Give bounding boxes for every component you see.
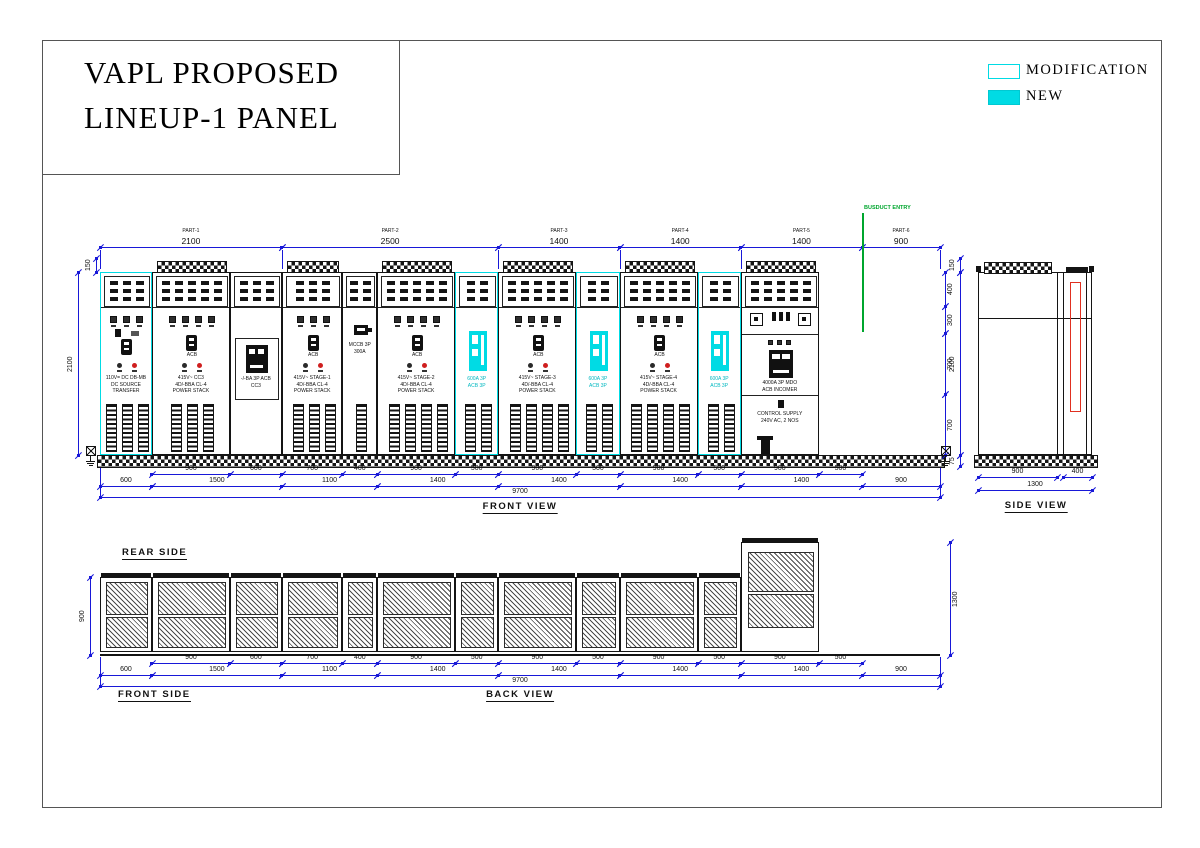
- louver-vent: [803, 289, 811, 293]
- earth-symbol: [944, 465, 948, 466]
- louver-vent: [534, 281, 542, 285]
- dim-marker: [618, 485, 621, 488]
- part-dim: 900: [866, 236, 936, 246]
- rear-cover-hatch: [582, 617, 615, 648]
- acb-label: ACB: [301, 353, 325, 359]
- lamp-green: [182, 363, 187, 368]
- new-acb-slot: [714, 335, 720, 344]
- acb-icon: [654, 335, 665, 351]
- side-view-wall: [1057, 272, 1058, 455]
- meter: [515, 316, 522, 323]
- dim-label: 900: [507, 465, 567, 473]
- dim-line: [620, 474, 698, 475]
- louver-column: [203, 404, 214, 452]
- dim-label: 900: [871, 666, 931, 674]
- louver-vent: [136, 289, 144, 293]
- louver-vent: [656, 297, 664, 301]
- acb-block-slot: [250, 365, 263, 368]
- terminal-bar: [772, 312, 776, 321]
- acb-icon-slot: [124, 348, 129, 350]
- meter: [786, 340, 791, 345]
- back-view-bay-2: [152, 577, 230, 652]
- back-view-label: BACK VIEW: [486, 689, 554, 702]
- louver-vent: [123, 289, 131, 293]
- dim-label: 900: [750, 465, 810, 473]
- dim-line: [498, 675, 619, 676]
- device-band-divider: [742, 334, 818, 335]
- acb-icon-slot: [536, 344, 541, 346]
- louver-vent: [669, 281, 677, 285]
- louver-vent: [253, 297, 261, 301]
- rear-cover-hatch: [748, 552, 814, 592]
- part-dim-ext: [620, 250, 621, 269]
- dim-line: [945, 333, 946, 394]
- dim-label: 900: [161, 465, 221, 473]
- dim-line: [152, 663, 230, 664]
- rear-cover-hatch: [461, 582, 494, 615]
- rear-cover-hatch: [158, 582, 226, 615]
- dim-marker: [861, 485, 864, 488]
- dim-label: 900: [79, 596, 89, 636]
- dim-label: 1100: [299, 666, 359, 674]
- louver-vent: [253, 281, 261, 285]
- band-divider: [499, 307, 575, 308]
- dim-label: 700: [947, 405, 957, 445]
- louver-vent: [363, 289, 371, 293]
- new-acb-slot: [602, 335, 605, 365]
- dim-marker: [977, 489, 980, 492]
- dim-marker: [376, 473, 379, 476]
- meter: [182, 316, 189, 323]
- louver-column: [558, 404, 569, 452]
- band-divider: [699, 307, 740, 308]
- dim-ext: [100, 657, 101, 688]
- louver-vent: [400, 281, 408, 285]
- meter-label-mark: [421, 325, 426, 327]
- louver-vent: [188, 281, 196, 285]
- louver-vent: [601, 297, 609, 301]
- meter: [136, 316, 143, 323]
- front-view-bay-9: 600A 3PACB 3P: [576, 272, 619, 455]
- band-divider: [577, 307, 618, 308]
- part-name: PART-5: [766, 229, 836, 235]
- acb-icon-slot: [311, 338, 316, 341]
- louver-vent: [630, 289, 638, 293]
- dim-marker: [150, 662, 153, 665]
- new-acb-icon: [711, 331, 729, 371]
- part-name: PART-4: [645, 229, 715, 235]
- dim-line: [455, 474, 498, 475]
- band-divider: [456, 307, 497, 308]
- louver-vent: [521, 281, 529, 285]
- dim-line: [78, 272, 79, 455]
- louver-vent: [363, 281, 371, 285]
- back-view-bay-6: [377, 577, 455, 652]
- louver-vent: [188, 297, 196, 301]
- louver-vent: [656, 289, 664, 293]
- louver-vent: [309, 297, 317, 301]
- panel-text: 300A: [344, 350, 375, 356]
- dim-line: [100, 486, 152, 487]
- side-view-roof-post: [976, 266, 981, 272]
- dim-ext: [940, 468, 941, 499]
- louver-vent: [508, 297, 516, 301]
- dim-label: 1300: [1005, 481, 1065, 489]
- back-view-bay-5: [342, 577, 377, 652]
- dim-label: 9700: [490, 488, 550, 496]
- louver-column: [663, 404, 674, 452]
- meter-label-mark: [677, 325, 682, 327]
- dim-label: 1400: [771, 477, 831, 485]
- louver-vent: [387, 289, 395, 293]
- new-acb-icon: [590, 331, 608, 371]
- meter-label-mark: [170, 325, 175, 327]
- lamp-green: [117, 363, 122, 368]
- dim-line: [978, 490, 1092, 491]
- louver-vent: [764, 281, 772, 285]
- meter-label-mark: [516, 325, 521, 327]
- louver-vent: [309, 289, 317, 293]
- acb-block-icon: [246, 345, 268, 373]
- rear-cover-hatch: [704, 582, 737, 615]
- drawing-area: 110V= DC DB-MBDC SOURCETRANSFERACB415V~ …: [0, 0, 1200, 848]
- louver-vent: [643, 289, 651, 293]
- louver-column: [647, 404, 658, 452]
- part-dim-line: [100, 247, 940, 248]
- dim-line: [576, 663, 619, 664]
- louver-vent: [439, 297, 447, 301]
- louver-vent: [214, 281, 222, 285]
- vent-band: [745, 276, 817, 307]
- louver-vent: [630, 281, 638, 285]
- dim-label: 600: [226, 465, 286, 473]
- dim-marker: [77, 271, 80, 274]
- panel-text: POWER STACK: [500, 389, 574, 395]
- drawing-sheet: VAPL PROPOSED LINEUP-1 PANEL MODIFICATIO…: [0, 0, 1200, 848]
- acb-label: ACB: [405, 353, 429, 359]
- lamp-label-mark: [650, 370, 655, 372]
- dim-marker: [280, 246, 283, 249]
- dim-line: [342, 663, 377, 664]
- back-view-bay-3: [230, 577, 282, 652]
- dim-marker: [861, 674, 864, 677]
- louver-column: [405, 404, 416, 452]
- acb-icon-slot: [657, 338, 662, 341]
- dim-label: 900: [161, 654, 221, 662]
- dim-line: [741, 474, 819, 475]
- louver-vent: [240, 289, 248, 293]
- louver-vent: [467, 289, 475, 293]
- acb-icon-slot: [415, 344, 420, 346]
- meter-label-mark: [196, 325, 201, 327]
- meter-label-mark: [111, 325, 116, 327]
- earth-symbol: [942, 463, 949, 464]
- dim-label: 1100: [299, 477, 359, 485]
- dim-label: 900: [629, 465, 689, 473]
- louver-vent: [322, 297, 330, 301]
- dim-line: [741, 675, 862, 676]
- band-divider: [343, 307, 376, 308]
- dim-line: [342, 474, 377, 475]
- new-acb-icon: [469, 331, 487, 371]
- dim-line: [741, 486, 862, 487]
- rear-cover-hatch: [504, 617, 572, 648]
- dim-line: [100, 675, 152, 676]
- louver-column: [325, 404, 336, 452]
- dim-label: 1400: [529, 666, 589, 674]
- dim-marker: [739, 485, 742, 488]
- incomer-acb-icon: [769, 350, 793, 378]
- dim-line: [698, 474, 741, 475]
- louver-vent: [175, 297, 183, 301]
- louver-vent: [764, 289, 772, 293]
- meter: [528, 316, 535, 323]
- meter-label-mark: [137, 325, 142, 327]
- louver-vent: [790, 281, 798, 285]
- rear-cover-hatch: [106, 582, 148, 615]
- louver-column: [724, 404, 735, 452]
- part-dim-ext: [498, 250, 499, 269]
- acb-label: ACB: [526, 353, 550, 359]
- dim-marker: [150, 674, 153, 677]
- band-divider: [231, 307, 281, 308]
- back-view-bay-8: [498, 577, 576, 652]
- dim-label: 1400: [408, 666, 468, 674]
- dim-line: [377, 663, 455, 664]
- lamp-green: [528, 363, 533, 368]
- louver-vent: [777, 297, 785, 301]
- vent-band: [234, 276, 280, 307]
- meter: [650, 316, 657, 323]
- rear-cover-hatch: [582, 582, 615, 615]
- louver-vent: [710, 281, 718, 285]
- dim-line: [230, 474, 282, 475]
- meter: [394, 316, 401, 323]
- louver-vent: [426, 289, 434, 293]
- dim-line: [945, 307, 946, 333]
- panel-text-new: ACB 3P: [457, 384, 496, 390]
- earth-symbol: [86, 461, 95, 462]
- acb-icon-slot: [124, 342, 129, 345]
- louver-vent: [201, 289, 209, 293]
- meter-label-mark: [395, 325, 400, 327]
- part-name: PART-3: [524, 229, 594, 235]
- dim-marker: [739, 473, 742, 476]
- meter-label-mark: [664, 325, 669, 327]
- dim-label: 500: [810, 654, 870, 662]
- part-name: PART-2: [355, 229, 425, 235]
- meter-label-mark: [408, 325, 413, 327]
- band-divider: [621, 307, 697, 308]
- incomer-acb-slot: [773, 370, 789, 373]
- back-view-bay-11: [698, 577, 741, 652]
- dim-label: 900: [629, 654, 689, 662]
- panel-text: TRANSFER: [102, 389, 150, 395]
- dim-label: 1400: [408, 477, 468, 485]
- new-acb-slot: [714, 349, 720, 356]
- louver-vent: [123, 281, 131, 285]
- louver-vent: [682, 297, 690, 301]
- louver-vent: [240, 297, 248, 301]
- dim-label: 2100: [949, 344, 959, 384]
- dim-marker: [618, 674, 621, 677]
- part-name: PART-1: [156, 229, 226, 235]
- louver-column: [138, 404, 149, 452]
- louver-column: [171, 404, 182, 452]
- dim-marker: [150, 473, 153, 476]
- louver-vent: [803, 297, 811, 301]
- dim-label: 900: [507, 654, 567, 662]
- device-box: [798, 313, 811, 326]
- dim-marker: [376, 674, 379, 677]
- lamp-label-mark: [407, 370, 412, 372]
- louver-vent: [560, 289, 568, 293]
- louver-vent: [413, 281, 421, 285]
- louver-vent: [110, 281, 118, 285]
- busbar-riser: [1070, 282, 1081, 412]
- louver-vent: [682, 281, 690, 285]
- dim-line: [377, 474, 455, 475]
- louver-column: [542, 404, 553, 452]
- louver-vent: [322, 289, 330, 293]
- meter: [110, 316, 117, 323]
- rear-cover-hatch: [236, 582, 278, 615]
- front-view-bay-6: ACB415V~ STAGE-24D/-BBA CL-4POWER STACK: [377, 272, 455, 455]
- louver-vent: [363, 297, 371, 301]
- new-acb-slot: [723, 335, 726, 365]
- dim-marker: [280, 485, 283, 488]
- louver-column: [389, 404, 400, 452]
- louver-vent: [588, 281, 596, 285]
- louver-vent: [413, 289, 421, 293]
- dim-label: 1500: [187, 477, 247, 485]
- earth-symbol: [87, 463, 94, 464]
- side-view-roof-vent: [984, 262, 1052, 274]
- band-divider: [283, 307, 342, 308]
- front-view-bay-11: 600A 3PACB 3P: [698, 272, 741, 455]
- louver-vent: [413, 297, 421, 301]
- dim-label: 500: [810, 465, 870, 473]
- dim-label: 900: [386, 654, 446, 662]
- vent-band: [702, 276, 739, 307]
- side-view-roof-bar: [1066, 267, 1088, 272]
- dim-label: 300: [947, 300, 957, 340]
- mccb-icon: [354, 325, 368, 335]
- front-view-bay-2: ACB415V~ CC34D/-BBA CL-4POWER STACK: [152, 272, 230, 455]
- louver-vent: [682, 289, 690, 293]
- lamp-label-mark: [422, 370, 427, 372]
- dim-marker: [77, 454, 80, 457]
- dim-label: 2100: [67, 344, 77, 384]
- louver-vent: [643, 297, 651, 301]
- meter: [663, 316, 670, 323]
- front-view-bay-4: ACB415V~ STAGE-14D/-BBA CL-4POWER STACK: [282, 272, 343, 455]
- dim-line: [152, 486, 282, 487]
- louver-vent: [480, 289, 488, 293]
- panel-text: POWER STACK: [284, 389, 341, 395]
- dim-line: [620, 486, 741, 487]
- louver-vent: [790, 289, 798, 293]
- louver-vent: [710, 297, 718, 301]
- dim-label: 900: [386, 465, 446, 473]
- vent-band: [624, 276, 696, 307]
- dim-marker: [944, 393, 947, 396]
- dim-label: 1400: [650, 477, 710, 485]
- rear-cover-hatch: [348, 617, 373, 648]
- dim-marker: [977, 476, 980, 479]
- dim-line: [741, 663, 819, 664]
- panel-text: POWER STACK: [379, 389, 453, 395]
- dim-line: [230, 663, 282, 664]
- louver-vent: [240, 281, 248, 285]
- louver-vent: [723, 297, 731, 301]
- louver-column: [122, 404, 133, 452]
- band-divider: [101, 307, 151, 308]
- lamp-label-mark: [665, 370, 670, 372]
- dim-line: [455, 663, 498, 664]
- louver-vent: [350, 289, 358, 293]
- louver-vent: [175, 289, 183, 293]
- meter-label-mark: [209, 325, 214, 327]
- dim-marker: [944, 332, 947, 335]
- louver-column: [437, 404, 448, 452]
- louver-column: [510, 404, 521, 452]
- louver-vent: [710, 289, 718, 293]
- meter: [541, 316, 548, 323]
- dim-label: 1400: [771, 666, 831, 674]
- louver-vent: [350, 297, 358, 301]
- meter: [195, 316, 202, 323]
- louver-vent: [110, 289, 118, 293]
- louver-vent: [534, 289, 542, 293]
- mccb-icon-slot: [357, 328, 365, 331]
- acb-icon-slot: [189, 344, 194, 346]
- panel-text: ACB INCOMER: [743, 388, 817, 394]
- band-divider: [378, 307, 454, 308]
- louver-column: [309, 404, 320, 452]
- louver-vent: [547, 289, 555, 293]
- side-view-wall: [1086, 272, 1087, 455]
- louver-vent: [601, 281, 609, 285]
- meter-label-mark: [638, 325, 643, 327]
- dim-line: [100, 686, 940, 687]
- part-dim-ext: [741, 250, 742, 269]
- new-acb-slot: [472, 335, 478, 344]
- panel-text: POWER STACK: [154, 389, 228, 395]
- dim-marker: [949, 654, 952, 657]
- dim-line: [620, 675, 741, 676]
- meter: [768, 340, 773, 345]
- section-divider: [742, 395, 818, 396]
- band-divider: [742, 307, 818, 308]
- meter: [433, 316, 440, 323]
- meter-label-mark: [529, 325, 534, 327]
- meter: [169, 316, 176, 323]
- vent-band: [104, 276, 150, 307]
- acb-icon-slot: [311, 344, 316, 346]
- rear-cover-hatch: [106, 617, 148, 648]
- part-dim-ext: [282, 250, 283, 269]
- front-side-label: FRONT SIDE: [118, 689, 191, 702]
- acb-icon-slot: [657, 344, 662, 346]
- dim-marker: [618, 662, 621, 665]
- dim-marker: [959, 271, 962, 274]
- louver-vent: [214, 289, 222, 293]
- meter: [420, 316, 427, 323]
- meter: [407, 316, 414, 323]
- front-view-bay-3: -/-BA 3P ACBCC3: [230, 272, 282, 455]
- front-view-label: FRONT VIEW: [483, 501, 558, 514]
